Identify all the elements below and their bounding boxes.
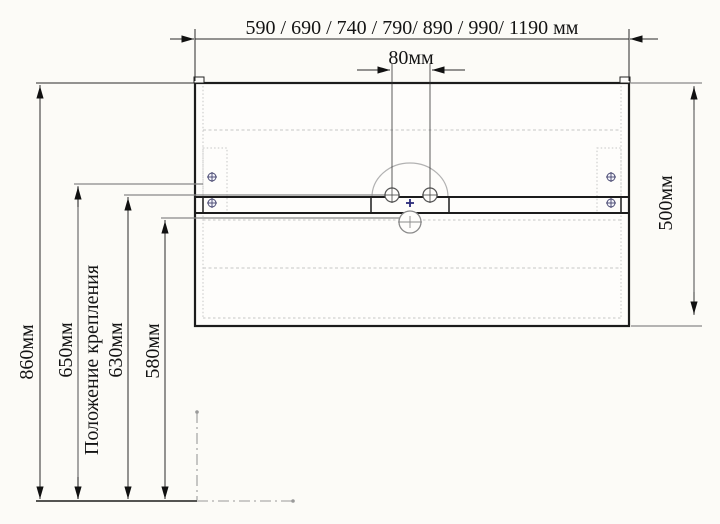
- technical-drawing-canvas: 590 / 690 / 740 / 790/ 890 / 990/ 1190 м…: [0, 0, 720, 524]
- drain-outlet: [398, 211, 422, 233]
- centerline-dashdot: [195, 410, 295, 503]
- dim-floor-to-top: 860мм: [16, 83, 194, 499]
- dim-drain-height: 580мм: [142, 220, 165, 499]
- mounting-position-label: Положение крепления: [81, 265, 103, 455]
- dim-faucet-spacing-label: 80мм: [388, 47, 434, 69]
- cabinet-outline: [195, 83, 629, 326]
- dim-580-label: 580мм: [142, 323, 164, 379]
- cabinet-body: [194, 77, 630, 326]
- dim-width-label: 590 / 690 / 740 / 790/ 890 / 990/ 1190 м…: [246, 17, 579, 39]
- dim-height: 500мм: [631, 83, 702, 326]
- dim-630-label: 630мм: [105, 322, 127, 378]
- vanity-installation-diagram: 590 / 690 / 740 / 790/ 890 / 990/ 1190 м…: [0, 0, 720, 524]
- dim-height-label: 500мм: [655, 175, 677, 231]
- dim-860-label: 860мм: [16, 324, 38, 380]
- dim-mounting-height: 650мм: [55, 186, 78, 499]
- dim-650-label: 650мм: [55, 322, 77, 378]
- dim-faucet-spacing: 80мм: [357, 47, 465, 70]
- dim-faucet-height: 630мм: [105, 197, 128, 499]
